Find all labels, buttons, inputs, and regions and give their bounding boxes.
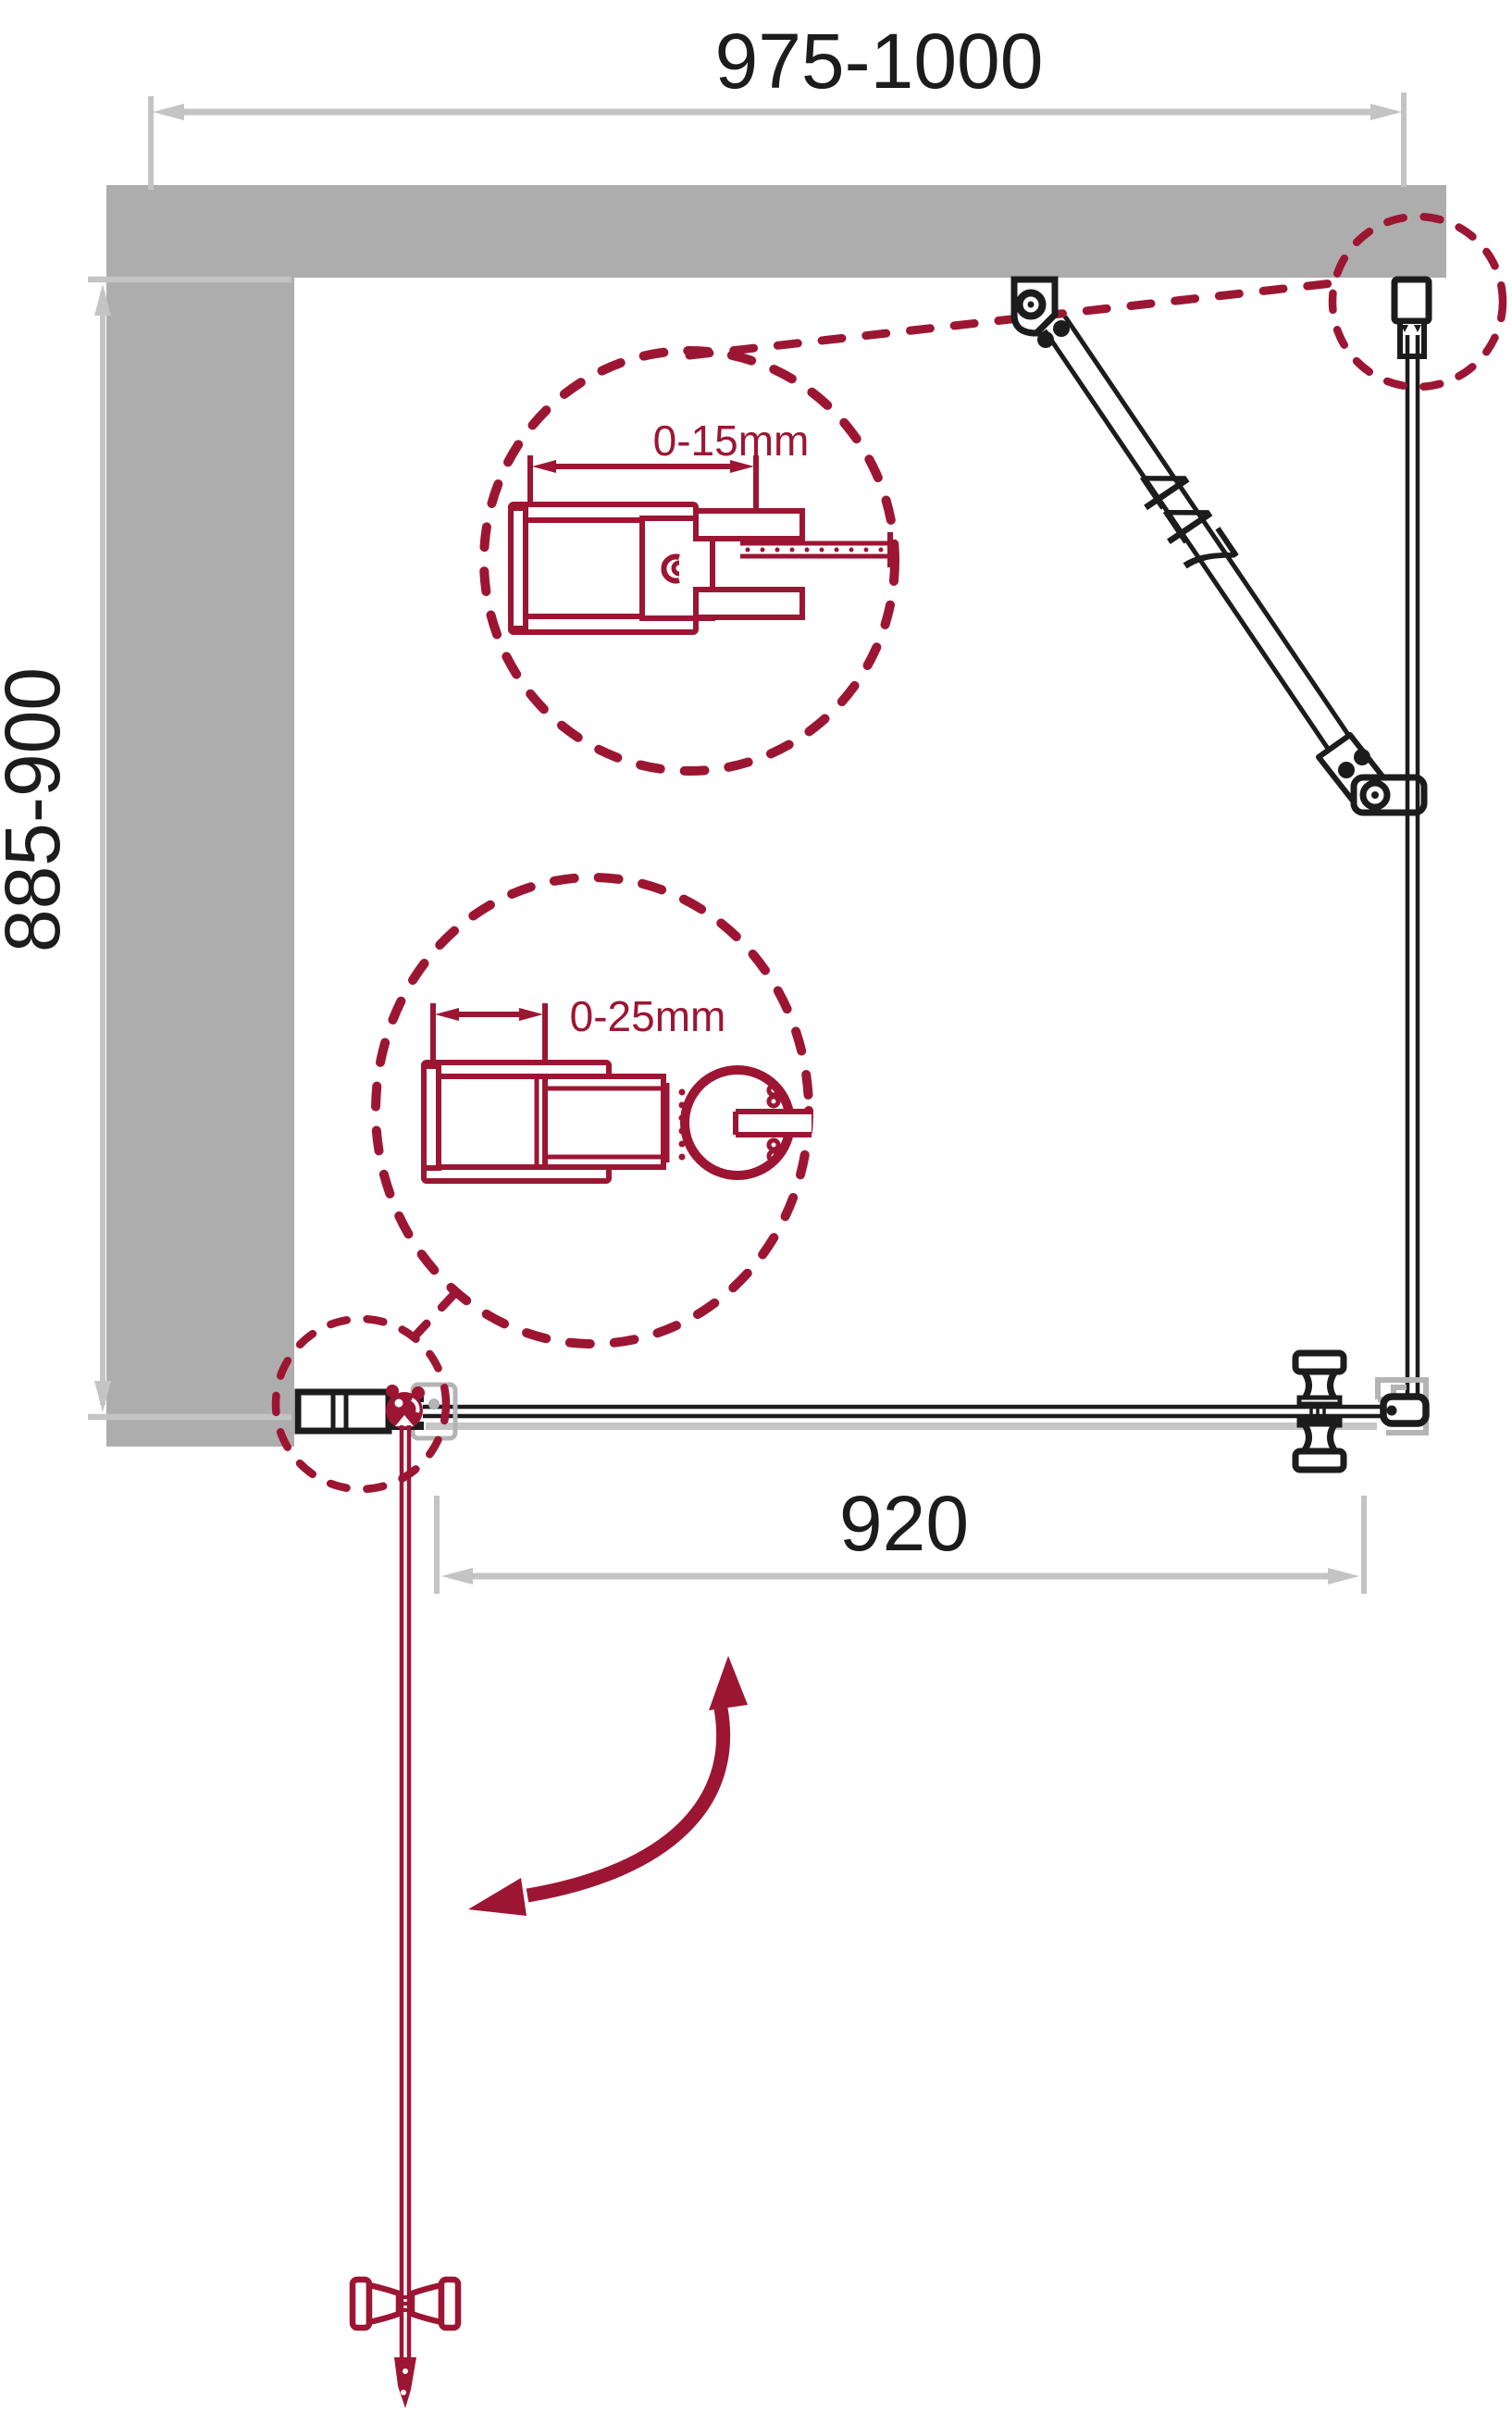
connector-bottom xyxy=(415,1294,454,1336)
detail-circle-wall-profile-0-25: 0-25mm xyxy=(376,877,812,1344)
arc-arrow-left-icon xyxy=(468,1878,527,1916)
adjustment-1-label: 0-15mm xyxy=(653,416,810,465)
arc-arrow-up-icon xyxy=(709,1656,748,1710)
dimension-top-width: 975-1000 xyxy=(151,18,1404,190)
dimension-door-width-label: 920 xyxy=(839,1480,969,1567)
arrow-right-icon xyxy=(1328,1568,1359,1585)
arrow-left-icon xyxy=(153,104,184,120)
glass-wall-bracket xyxy=(1394,280,1429,356)
arrow-right-icon xyxy=(1370,104,1402,120)
door-open xyxy=(402,1425,409,2357)
door-edge-tip xyxy=(394,2357,416,2408)
dimension-door-width: 920 xyxy=(437,1480,1364,1594)
corner-joint xyxy=(1383,1397,1426,1423)
door-handle-open xyxy=(353,2280,458,2328)
dimension-side-depth-label: 885-900 xyxy=(0,667,76,952)
diagram: 975-1000 885-900 920 xyxy=(0,0,1512,2411)
door-handle-closed xyxy=(1295,1353,1344,1470)
dimension-top-width-label: 975-1000 xyxy=(715,18,1044,105)
adjustment-2-label: 0-25mm xyxy=(570,992,726,1040)
fixed-glass-panel xyxy=(1407,329,1418,1399)
support-bar: 447 xyxy=(1014,280,1424,813)
swing-arc xyxy=(468,1656,748,1916)
detail-circle-wall-profile-0-15: 0-15mm xyxy=(484,351,895,771)
door-closed xyxy=(423,1407,1385,1416)
arrow-left-icon xyxy=(441,1568,473,1585)
